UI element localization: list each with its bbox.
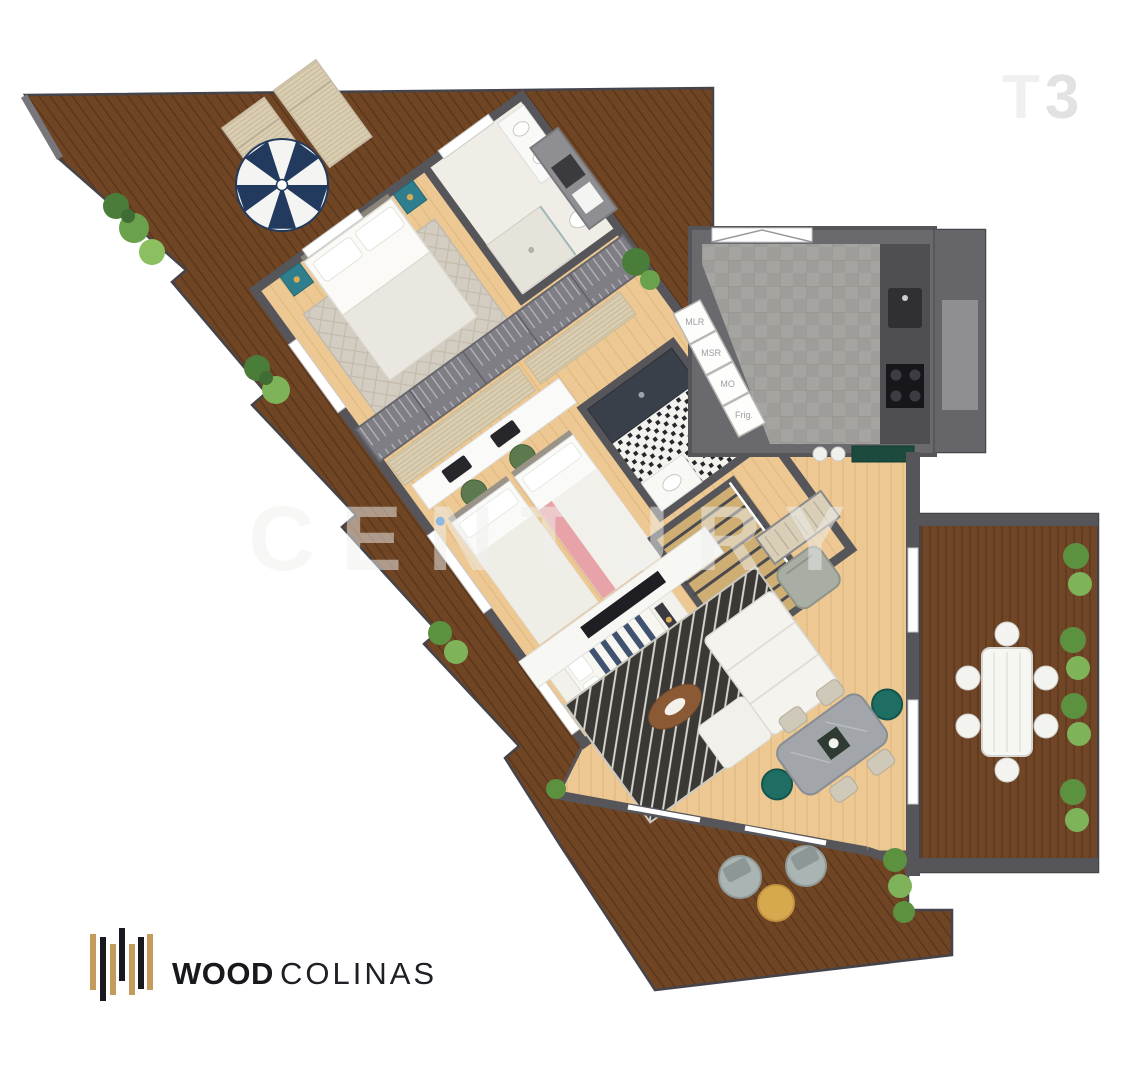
kitchen-sink [888, 288, 922, 328]
appliance-label-mo: MO [720, 379, 735, 389]
utility-zone-inner [942, 300, 978, 410]
watermark: CENTURY [248, 488, 871, 590]
terrace-wall-top [906, 514, 1098, 526]
logo-word-wood: WOOD [172, 956, 274, 991]
plant [546, 779, 566, 799]
kitchen-counter [880, 244, 930, 444]
outdoor-chair [1034, 714, 1058, 738]
stool [813, 447, 827, 461]
terrace-wall-bottom [906, 858, 1098, 872]
window [908, 700, 918, 804]
brand-logo: WOOD COLINAS [90, 928, 437, 1001]
outdoor-chair [995, 622, 1019, 646]
burner [910, 370, 921, 381]
outdoor-chair [1034, 666, 1058, 690]
floor-plan-page: MLR MSR MO Frig. [0, 0, 1126, 1076]
burner [910, 391, 921, 402]
outdoor-chair [956, 666, 980, 690]
stool [831, 447, 845, 461]
plan-type-label: T3 [1002, 63, 1084, 132]
outdoor-chair [956, 714, 980, 738]
umbrella [236, 139, 328, 231]
appliance-label-frig: Frig. [735, 410, 753, 420]
floor-plan-canvas: MLR MSR MO Frig. [0, 0, 1126, 1076]
burner [891, 370, 902, 381]
umbrella-pole [277, 180, 288, 191]
logo-word-colinas: COLINAS [280, 956, 437, 991]
window [908, 548, 918, 632]
burner [891, 391, 902, 402]
faucet [902, 295, 908, 301]
outdoor-chair [995, 758, 1019, 782]
appliance-label-mlr: MLR [685, 317, 705, 327]
kitchen: MLR MSR MO Frig. [674, 228, 985, 462]
appliance-label-msr: MSR [701, 348, 722, 358]
green-console [852, 446, 914, 462]
round-side-table [758, 885, 794, 921]
logo-bars-icon [90, 928, 153, 1001]
